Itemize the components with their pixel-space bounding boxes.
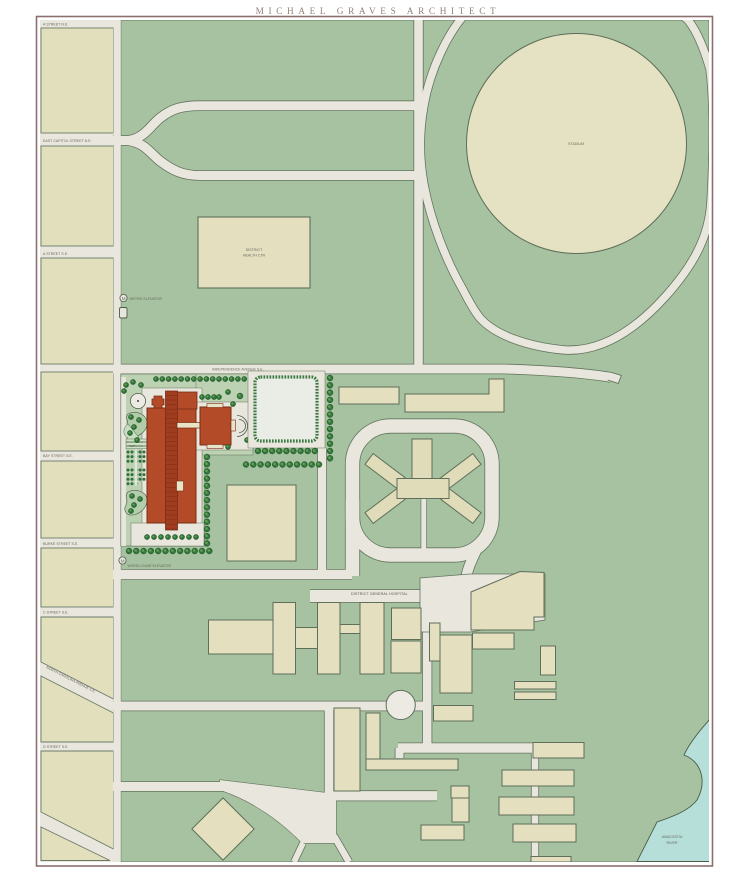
svg-text:DISTRICT GENERAL HOSPITAL: DISTRICT GENERAL HOSPITAL [351, 592, 408, 596]
svg-text:M: M [121, 559, 125, 564]
svg-text:METRO ELEVATOR: METRO ELEVATOR [130, 297, 163, 301]
svg-text:D STREET S.E.: D STREET S.E. [43, 745, 69, 749]
svg-text:INDEPENDENCE AVENUE S.E.: INDEPENDENCE AVENUE S.E. [212, 368, 264, 372]
svg-text:ANACOSTIA: ANACOSTIA [662, 835, 683, 839]
svg-text:A STREET S.E.: A STREET S.E. [43, 252, 68, 256]
svg-text:RIVER: RIVER [667, 841, 678, 845]
svg-text:DISTRICT: DISTRICT [246, 248, 263, 252]
svg-text:HEALTH CTR: HEALTH CTR [243, 254, 266, 258]
svg-text:BURKE STREET S.E.: BURKE STREET S.E. [43, 542, 78, 546]
svg-text:EAST CAPITOL STREET N.E.: EAST CAPITOL STREET N.E. [43, 139, 92, 143]
svg-text:M: M [122, 296, 126, 301]
svg-text:A STREET N.E.: A STREET N.E. [43, 23, 68, 27]
svg-text:BAY STREET S.E.: BAY STREET S.E. [43, 454, 73, 458]
svg-text:STADIUM: STADIUM [568, 142, 584, 146]
svg-text:WHEELCHAIR ELEVATOR: WHEELCHAIR ELEVATOR [128, 564, 172, 568]
svg-text:C STREET S.E.: C STREET S.E. [43, 611, 69, 615]
